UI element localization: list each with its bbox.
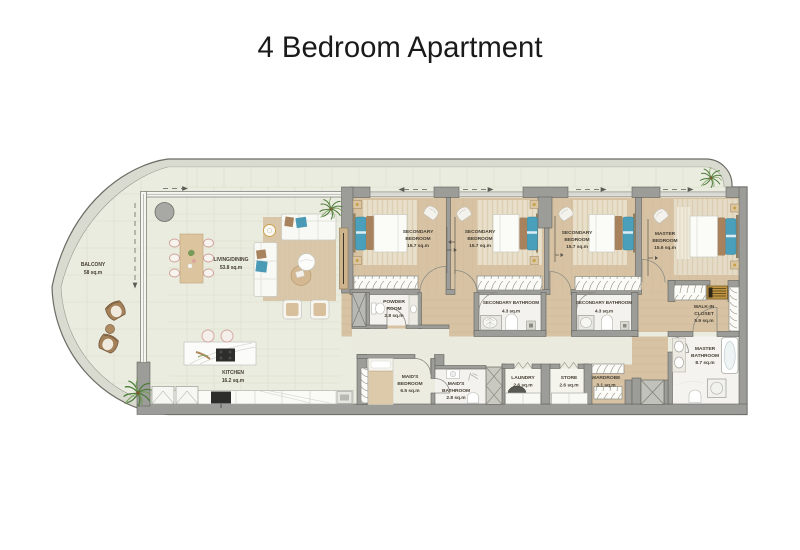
svg-text:WALK-INCLOSET5.9 sq.m: WALK-INCLOSET5.9 sq.m [694,304,715,324]
svg-text:MASTERBEDROOM15.6 sq.m: MASTERBEDROOM15.6 sq.m [652,231,677,251]
